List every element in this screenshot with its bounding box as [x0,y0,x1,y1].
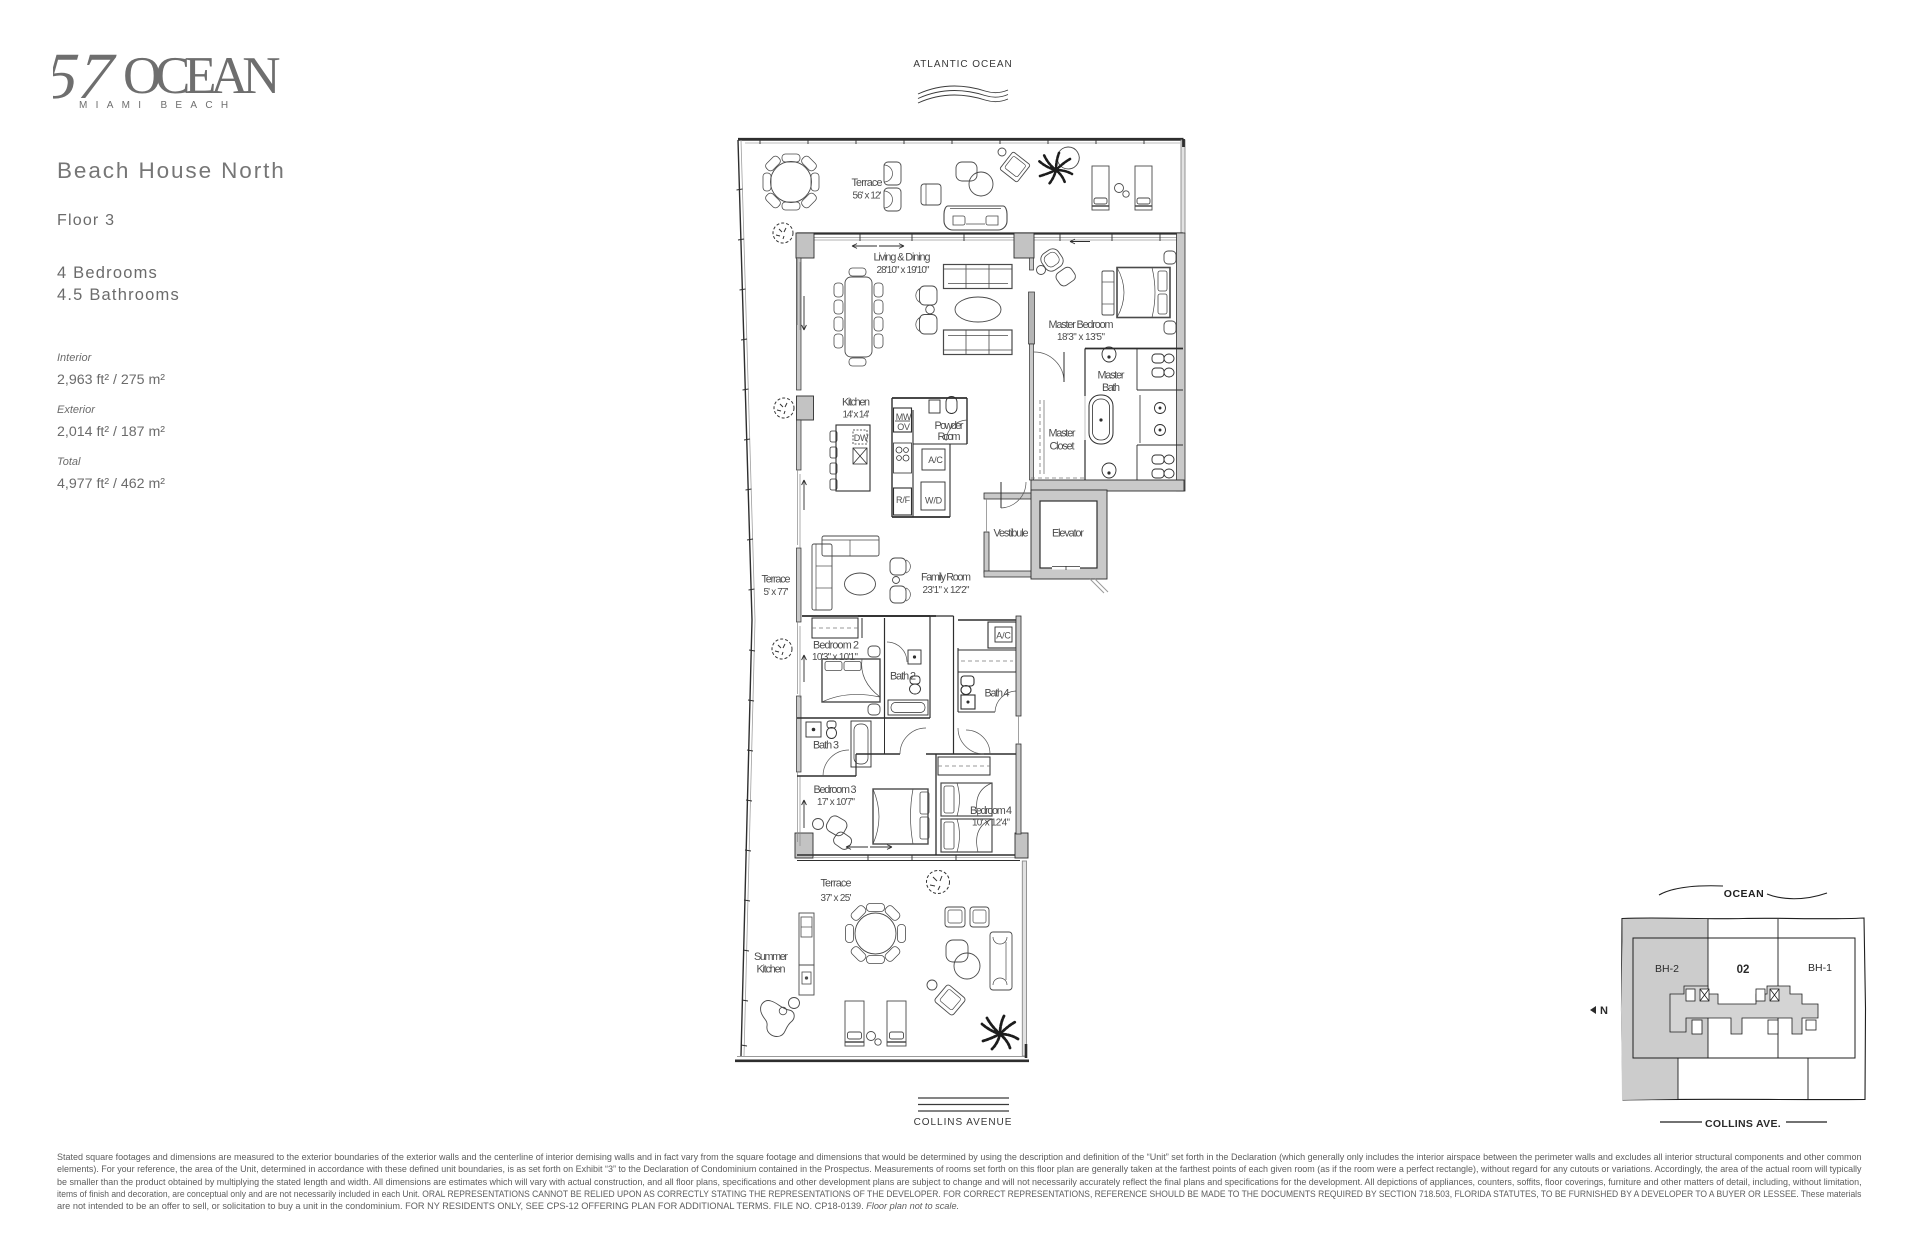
svg-text:Master: Master [1049,428,1076,440]
svg-text:Room: Room [938,431,961,443]
svg-text:Family Room: Family Room [921,572,971,584]
svg-text:Bedroom 3: Bedroom 3 [814,784,857,796]
svg-text:02: 02 [1737,964,1750,976]
svg-text:Master Bedroom: Master Bedroom [1049,319,1114,331]
svg-text:Bath 2: Bath 2 [890,671,916,683]
svg-text:Bath 3: Bath 3 [813,740,839,752]
svg-text:MW: MW [896,412,912,422]
svg-text:W/D: W/D [925,496,943,506]
svg-text:DW: DW [854,433,869,443]
svg-text:ATLANTIC OCEAN: ATLANTIC OCEAN [913,59,1012,70]
svg-text:OV: OV [897,422,910,432]
svg-text:Vestibule: Vestibule [994,528,1029,540]
svg-text:Bedroom 2: Bedroom 2 [813,640,859,652]
svg-text:Closet: Closet [1050,441,1075,453]
svg-text:A/C: A/C [928,455,943,465]
svg-text:17' x 10'7": 17' x 10'7" [817,797,855,808]
svg-text:Terrace: Terrace [852,177,883,189]
svg-text:Kitchen: Kitchen [842,397,870,409]
svg-text:Bath: Bath [1102,382,1120,394]
svg-text:28'10" x 19'10": 28'10" x 19'10" [877,265,930,276]
svg-text:A/C: A/C [996,631,1011,641]
svg-text:18'3" x 13'5": 18'3" x 13'5" [1057,332,1105,343]
svg-text:23'1" x 12'2": 23'1" x 12'2" [923,585,970,596]
svg-text:COLLINS AVENUE: COLLINS AVENUE [914,1117,1013,1128]
svg-text:Summer: Summer [754,951,788,963]
svg-text:Living & Dining: Living & Dining [874,252,931,264]
svg-text:OCEAN: OCEAN [1724,888,1764,900]
svg-text:Master: Master [1098,370,1125,382]
svg-text:5' x 77': 5' x 77' [764,587,789,598]
svg-text:14' x 14': 14' x 14' [843,410,870,421]
svg-text:R/F: R/F [896,495,911,505]
svg-text:10' x 12'4": 10' x 12'4" [972,818,1010,829]
svg-text:Bath 4: Bath 4 [985,688,1010,700]
svg-text:Kitchen: Kitchen [757,964,786,976]
svg-text:N: N [1600,1005,1608,1017]
svg-text:Terrace: Terrace [762,574,791,586]
svg-text:Terrace: Terrace [821,878,852,890]
svg-text:BH-1: BH-1 [1808,962,1832,974]
svg-text:37' x 25': 37' x 25' [821,893,852,904]
svg-text:56' x 12': 56' x 12' [853,191,882,202]
svg-text:Elevator: Elevator [1052,528,1084,540]
svg-text:COLLINS AVE.: COLLINS AVE. [1705,1118,1781,1130]
svg-text:Bedroom 4: Bedroom 4 [970,805,1012,817]
svg-text:BH-2: BH-2 [1655,963,1679,975]
svg-text:10'3" x 10'1": 10'3" x 10'1" [812,652,858,663]
